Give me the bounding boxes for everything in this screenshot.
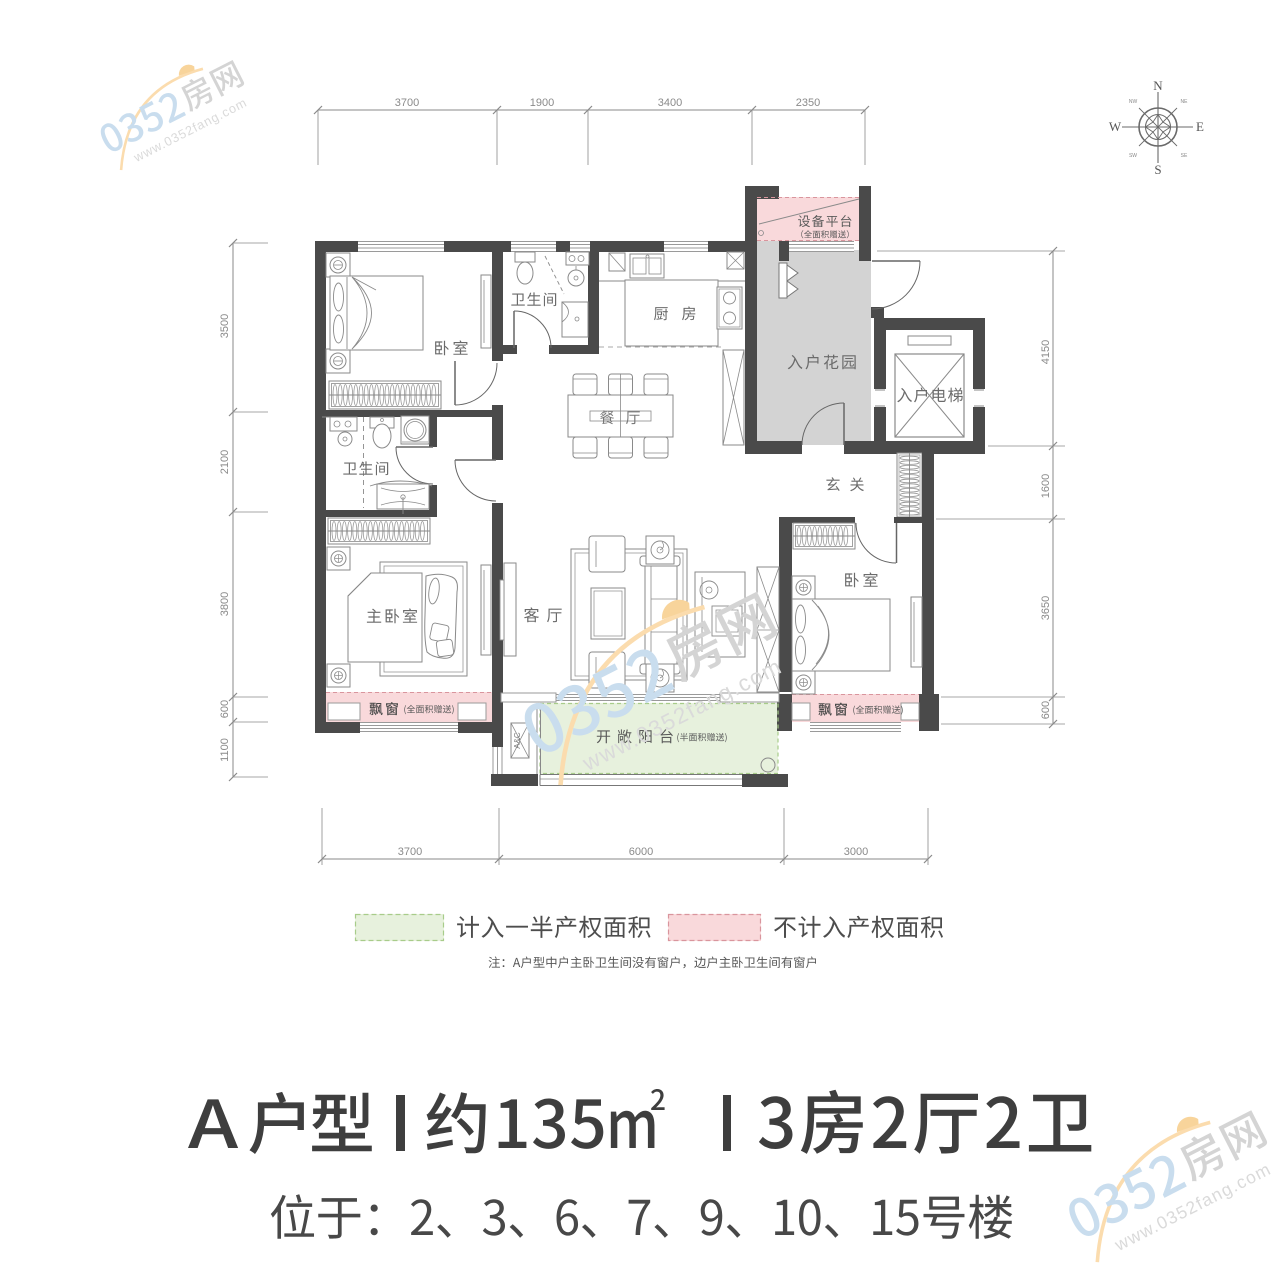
svg-text:3650: 3650 [1040,596,1052,620]
svg-text:2100: 2100 [219,450,231,474]
svg-text:N: N [1153,78,1163,93]
svg-text:6000: 6000 [629,846,653,858]
svg-text:NW: NW [1129,99,1138,105]
svg-text:S: S [1154,162,1161,177]
svg-text:3500: 3500 [219,314,231,338]
svg-text:1600: 1600 [1040,474,1052,498]
svg-text:600: 600 [219,700,231,718]
svg-text:1100: 1100 [219,738,231,762]
svg-text:1900: 1900 [530,97,554,109]
svg-text:4150: 4150 [1040,340,1052,364]
svg-text:SE: SE [1181,153,1188,159]
svg-text:3800: 3800 [219,592,231,616]
svg-text:3400: 3400 [658,97,682,109]
svg-text:2350: 2350 [796,97,820,109]
svg-text:NE: NE [1181,99,1189,105]
svg-text:3700: 3700 [395,97,419,109]
svg-text:600: 600 [1040,701,1052,719]
svg-text:E: E [1196,119,1204,134]
svg-text:A&C: A&C [513,732,522,749]
svg-text:W: W [1109,119,1122,134]
svg-text:3700: 3700 [398,846,422,858]
svg-text:SW: SW [1129,153,1137,159]
svg-text:3000: 3000 [844,846,868,858]
